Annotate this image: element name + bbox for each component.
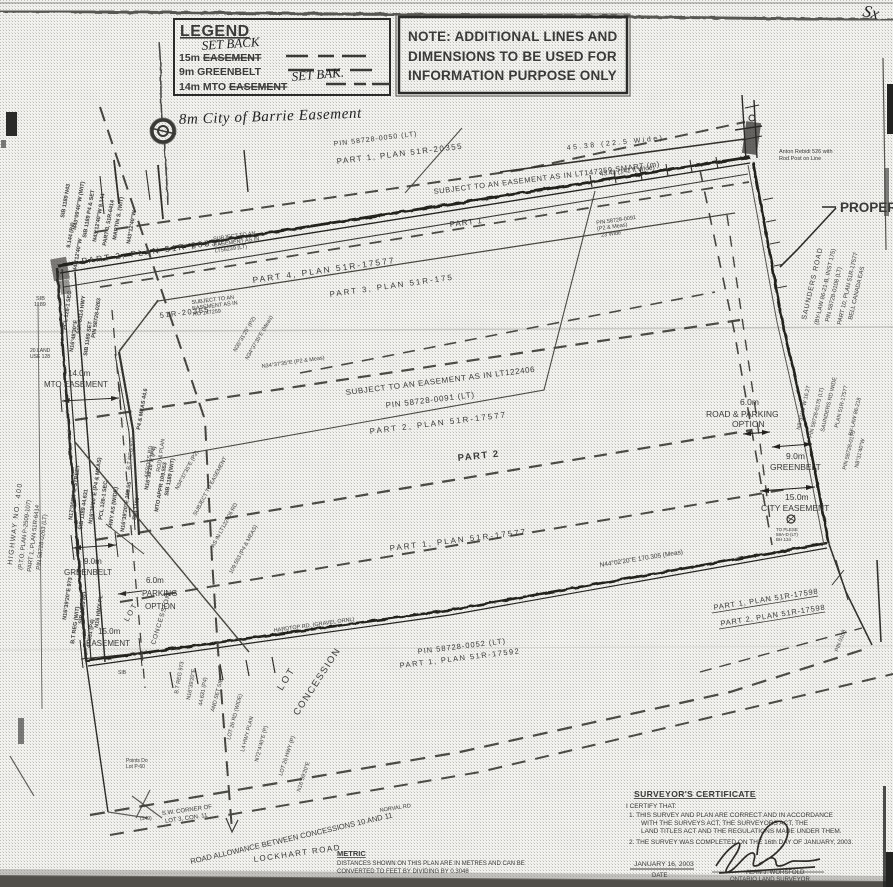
svg-text:9m GREENBELT: 9m GREENBELT: [179, 66, 262, 78]
svg-text:15.0m: 15.0m: [785, 492, 809, 502]
svg-text:2. THE SURVEY WAS COMPLETED O: 2. THE SURVEY WAS COMPLETED ON THE 16th …: [629, 839, 853, 846]
svg-text:LAND TITLES ACT AND THE REGULA: LAND TITLES ACT AND THE REGULATIONS MADE…: [641, 828, 842, 835]
svg-text:14.0m: 14.0m: [68, 369, 91, 378]
svg-text:CONVERTED TO FEET BY DIVIDING: CONVERTED TO FEET BY DIVIDING BY 0.3048: [337, 869, 469, 875]
svg-text:Rod Post on Line: Rod Post on Line: [779, 156, 821, 162]
svg-text:CITY EASEMENT: CITY EASEMENT: [761, 503, 829, 513]
svg-text:BH 134: BH 134: [776, 537, 792, 542]
svg-text:DIMENSIONS TO BE USED FOR: DIMENSIONS TO BE USED FOR: [408, 49, 617, 64]
svg-text:SURVEYOR'S CERTIFICATE: SURVEYOR'S CERTIFICATE: [634, 789, 756, 799]
svg-text:WITH THE SURVEYS ACT, THE SURV: WITH THE SURVEYS ACT, THE SURVEYORS ACT,…: [641, 820, 809, 827]
svg-text:9.0m: 9.0m: [84, 557, 102, 566]
svg-text:GREENBELT: GREENBELT: [770, 462, 821, 472]
svg-text:PROPERTY: PROPERTY: [840, 200, 893, 215]
svg-text:MTO EASEMENT: MTO EASEMENT: [44, 380, 108, 389]
svg-text:OPTION: OPTION: [732, 419, 765, 429]
svg-text:ONTARIO LAND SURVEYOR: ONTARIO LAND SURVEYOR: [730, 877, 810, 883]
svg-text:Anton Rebidi 526 with: Anton Rebidi 526 with: [779, 149, 833, 155]
svg-text:6.0m: 6.0m: [740, 397, 759, 407]
svg-text:6.0m: 6.0m: [146, 576, 164, 585]
svg-text:1189: 1189: [34, 302, 46, 308]
svg-text:ROAD & PARKING: ROAD & PARKING: [706, 409, 779, 419]
svg-text:NOTE: ADDITIONAL LINES AND: NOTE: ADDITIONAL LINES AND: [408, 29, 617, 44]
svg-text:SIB: SIB: [118, 670, 127, 676]
svg-text:GREENBELT: GREENBELT: [64, 568, 112, 577]
svg-text:15.0m: 15.0m: [98, 627, 121, 636]
svg-text:Lot P-60: Lot P-60: [126, 764, 145, 770]
svg-text:PARKING: PARKING: [142, 589, 177, 598]
svg-text:INFORMATION PURPOSE ONLY: INFORMATION PURPOSE ONLY: [408, 68, 617, 83]
svg-text:9.0m: 9.0m: [786, 451, 805, 461]
svg-text:15m EASEMENT: 15m EASEMENT: [179, 52, 262, 64]
svg-text:DATE: DATE: [652, 873, 668, 879]
svg-text:14m MTO EASEMENT: 14m MTO EASEMENT: [179, 81, 288, 93]
svg-text:I CERTIFY THAT:: I CERTIFY THAT:: [626, 803, 677, 810]
svg-text:DISTANCES SHOWN ON THIS PLAN A: DISTANCES SHOWN ON THIS PLAN ARE IN METR…: [337, 861, 525, 867]
svg-text:1. THIS SURVEY AND PLAN ARE C: 1. THIS SURVEY AND PLAN ARE CORRECT AND …: [629, 812, 834, 819]
svg-text:JANUARY 16, 2003: JANUARY 16, 2003: [634, 861, 694, 868]
svg-text:METRIC: METRIC: [337, 849, 366, 858]
svg-text:USE 128: USE 128: [30, 354, 50, 360]
